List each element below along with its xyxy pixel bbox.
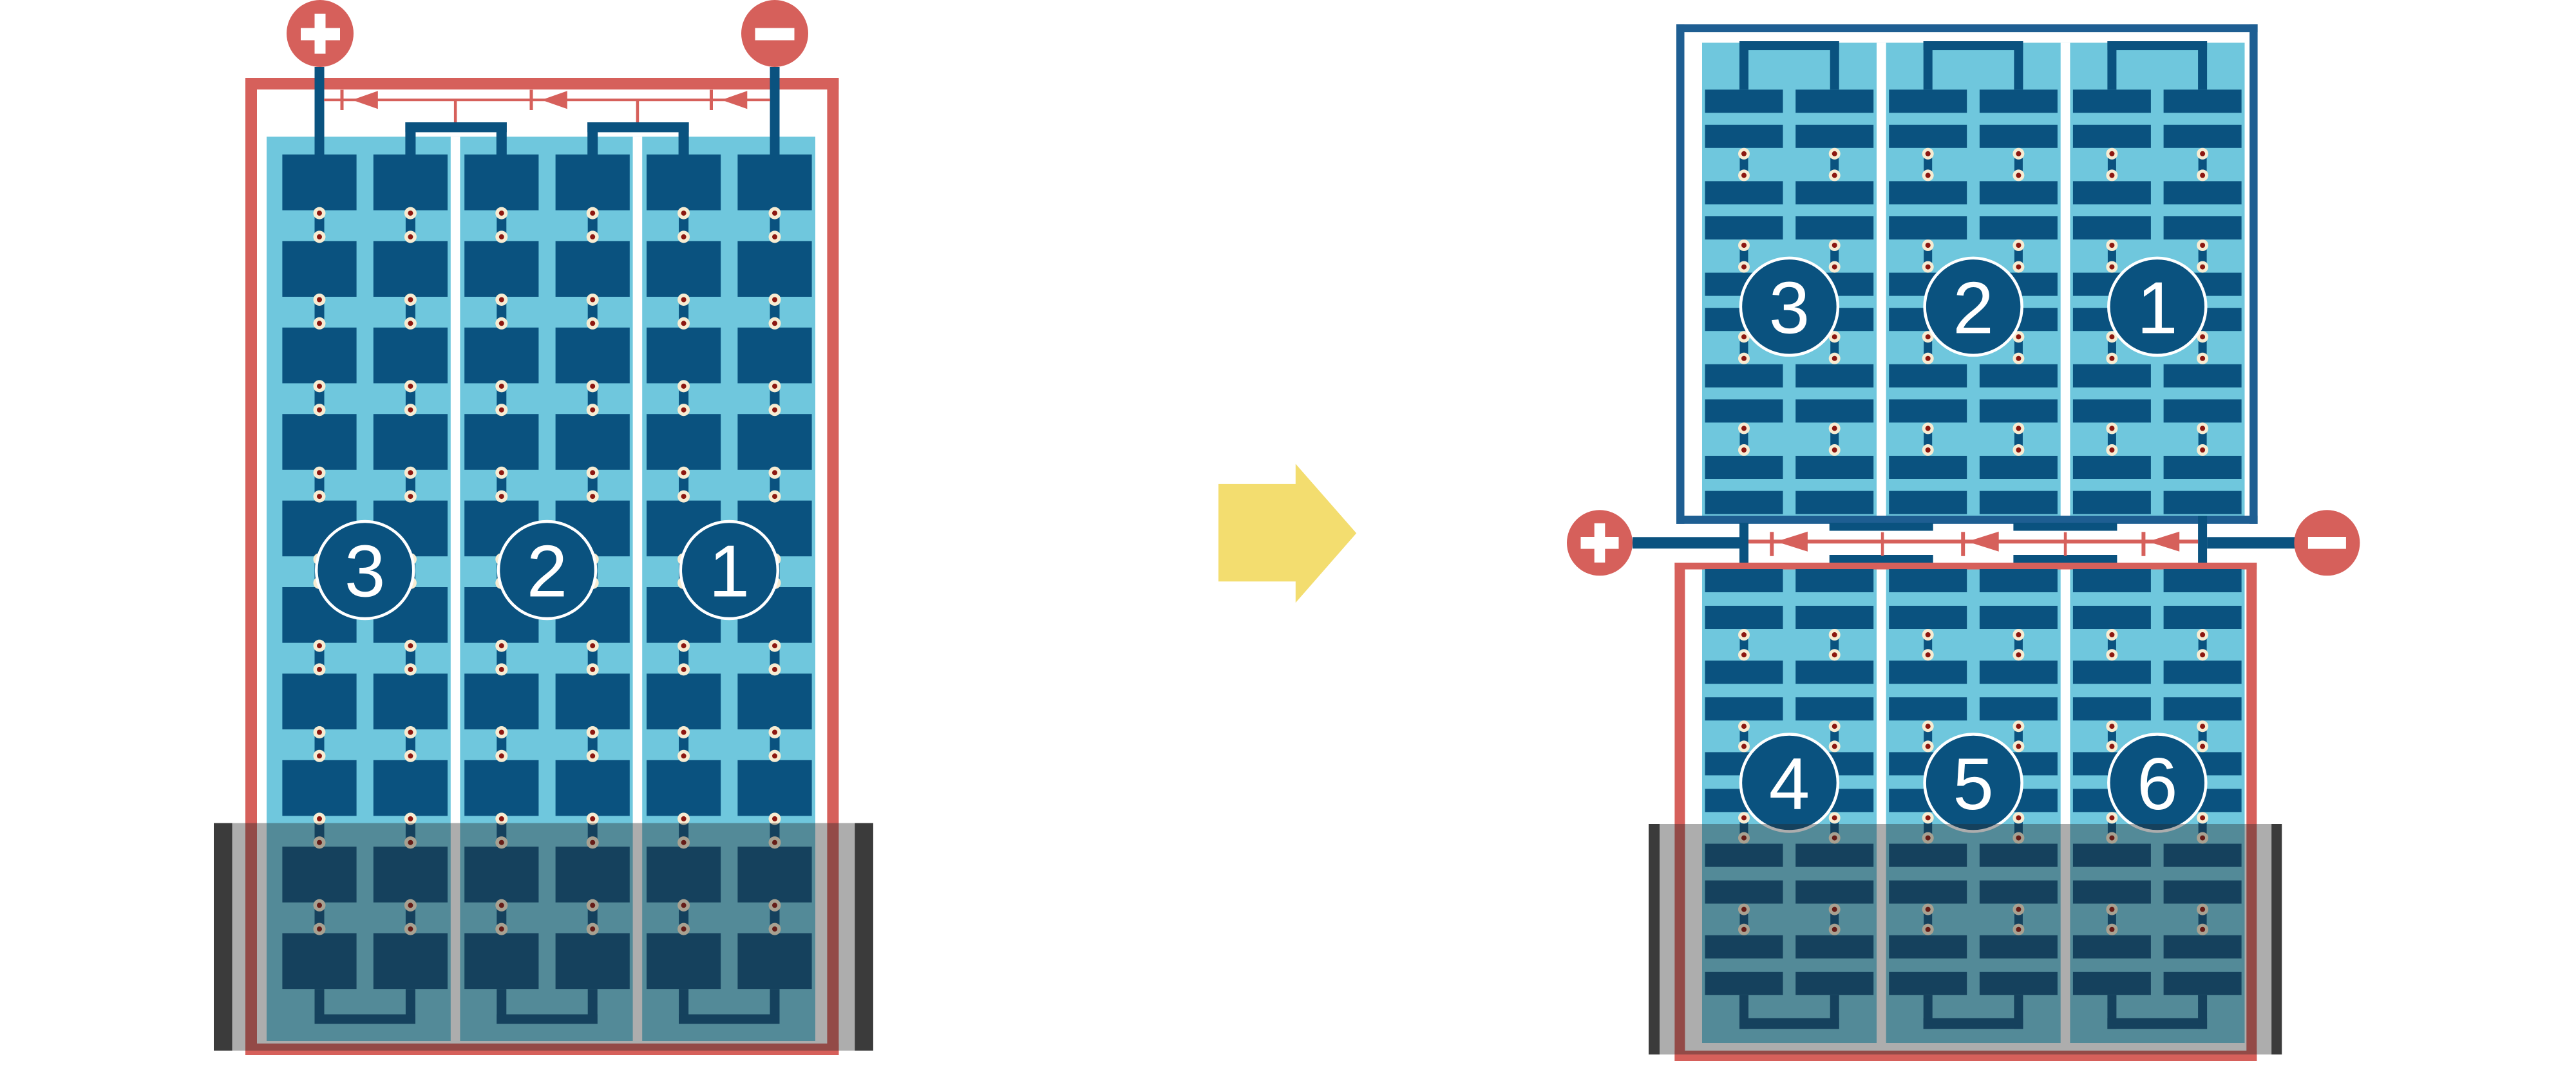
svg-text:4: 4 (1769, 744, 1810, 825)
svg-text:2: 2 (527, 531, 567, 613)
svg-text:1: 1 (2137, 267, 2177, 349)
svg-text:1: 1 (709, 531, 750, 613)
svg-text:5: 5 (1953, 744, 1993, 825)
svg-text:6: 6 (2137, 744, 2177, 825)
svg-text:3: 3 (345, 531, 385, 613)
svg-text:3: 3 (1769, 267, 1810, 349)
svg-text:2: 2 (1953, 267, 1993, 349)
